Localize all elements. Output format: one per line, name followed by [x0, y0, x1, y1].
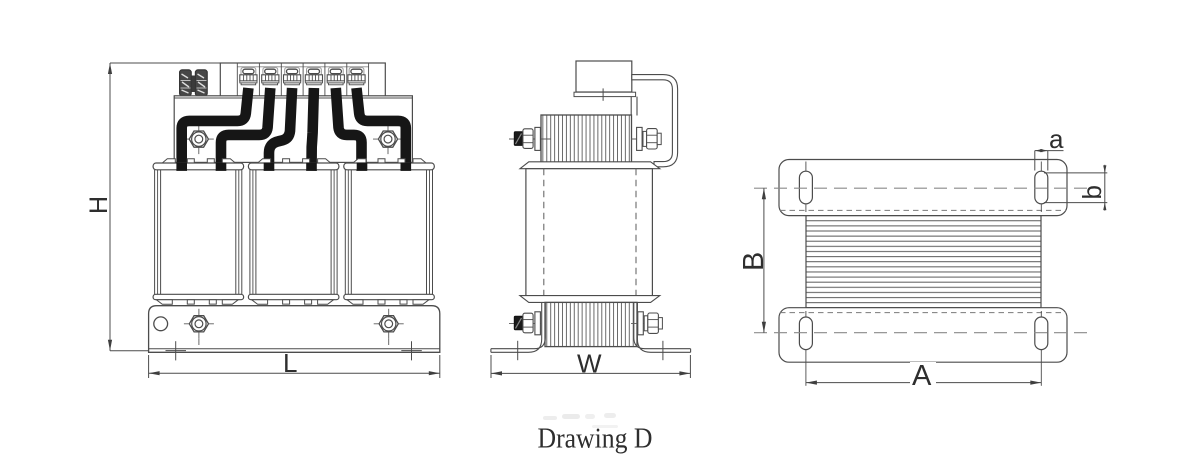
svg-text:B: B — [738, 252, 770, 271]
svg-text:W: W — [577, 349, 602, 379]
svg-text:Drawing D: Drawing D — [538, 423, 653, 455]
svg-text:L: L — [283, 348, 297, 378]
svg-text:H: H — [85, 196, 113, 214]
svg-text:b: b — [1077, 185, 1107, 199]
svg-text:A: A — [912, 360, 932, 392]
svg-text:a: a — [1049, 124, 1064, 154]
